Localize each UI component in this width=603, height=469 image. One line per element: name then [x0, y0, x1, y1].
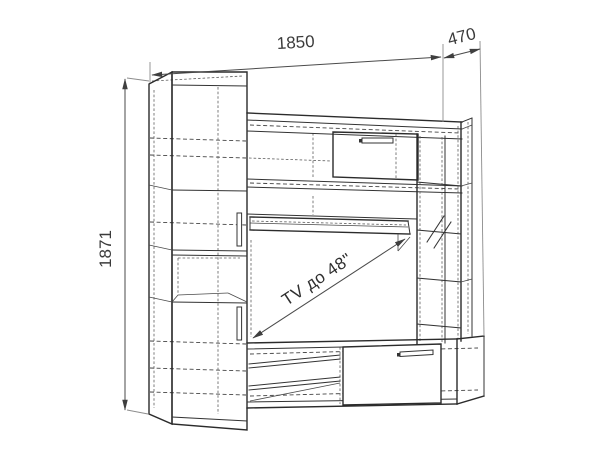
drawer	[343, 344, 441, 405]
right-column	[417, 118, 472, 344]
dimension-height: 1871	[96, 78, 149, 414]
handle-mount	[397, 353, 401, 357]
handle-mount	[359, 139, 363, 143]
flap-door	[333, 132, 418, 180]
wall-shelf	[250, 217, 410, 251]
top-bridge	[247, 113, 472, 219]
dimension-width: 1850	[150, 32, 443, 122]
cabinet-open-niche	[172, 258, 247, 302]
upper-door-handle	[237, 213, 242, 246]
lower-door-handle	[237, 307, 242, 340]
dimension-depth: 470	[444, 24, 484, 336]
height-label: 1871	[96, 230, 115, 268]
tv-size-label: TV до 48"	[278, 249, 355, 309]
furniture-technical-drawing: TV до 48" 1850 470 1871	[0, 0, 603, 469]
left-cabinet	[149, 72, 247, 430]
width-label: 1850	[276, 32, 315, 53]
depth-label: 470	[446, 24, 478, 49]
tv-size-annotation: TV до 48"	[253, 239, 405, 338]
cabinet-side-panel	[149, 72, 172, 424]
flap-door-handle	[362, 138, 393, 143]
wall-unit-diagram: TV до 48" 1850 470 1871	[0, 0, 603, 469]
